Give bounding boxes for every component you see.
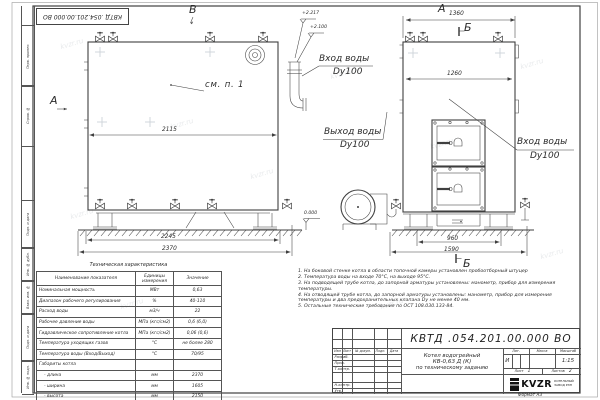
product-title-line3: по техническому заданию	[416, 365, 488, 371]
inlet-label-front: Вход воды	[517, 138, 567, 148]
rev-col-list: Лист	[342, 348, 352, 354]
spec-cell: 2150	[174, 391, 222, 400]
outlet-label: Выход воды	[324, 128, 381, 138]
spec-cell: %	[136, 296, 174, 307]
spec-cell: Рабочее давление воды	[37, 317, 136, 328]
technical-notes: 1. На боковой стенке котла в области топ…	[298, 269, 576, 310]
valve-icon	[96, 199, 105, 209]
dim-960: 960	[447, 236, 458, 242]
sheets-label: Листов	[551, 369, 564, 373]
elevation-zero: 0.000	[304, 211, 317, 216]
title-block: КВТД .054.201.00.000 ВО Изм Лист № докум…	[332, 328, 580, 393]
outlet-dn: Dy100	[340, 141, 369, 151]
logo-text: KVZR	[521, 379, 552, 390]
spec-cell: - высота	[37, 391, 136, 400]
valve-icon	[392, 199, 401, 209]
valve-icon	[406, 32, 415, 42]
dim-2370: 2370	[162, 246, 177, 252]
view-letter-b: В	[189, 4, 197, 16]
strip-label: Инв. № подл.	[22, 360, 34, 395]
spec-header: Наименование показателя	[37, 272, 136, 286]
frame-strip: Перв. примен. Справ. № Подп. и дата Инв.…	[21, 6, 35, 393]
view-letter-a-side: А	[50, 95, 58, 107]
spec-table: Техническая характеристика Наименование …	[36, 262, 221, 400]
sign-nkontr: Н.контр.	[335, 383, 351, 387]
valve-icon	[494, 32, 503, 42]
spec-cell: МПа (кгс/см2)	[136, 317, 174, 328]
sheet-label: Лист	[515, 369, 524, 373]
valve-icon	[259, 32, 268, 42]
spec-cell: °С	[136, 349, 174, 360]
elevation-2217: +2.217	[302, 11, 319, 16]
spec-cell: Гидравлическое сопротивление котла	[37, 328, 136, 339]
scale-value: 1:15	[555, 354, 581, 368]
title-block-doc-number: КВТД .054.201.00.000 ВО	[401, 329, 581, 348]
spec-cell: Температура уходящих газов	[37, 338, 136, 349]
dim-2115: 2115	[162, 127, 177, 133]
upper-furnace-door	[432, 120, 485, 166]
spec-cell: 2370	[174, 370, 222, 381]
spec-cell: 40-110	[174, 296, 222, 307]
dim-1360: 1360	[449, 11, 464, 17]
valve-icon	[109, 32, 118, 42]
spec-cell: МВт	[136, 286, 174, 297]
strip-label: Справ. №	[22, 85, 34, 147]
spec-cell: не более 280	[174, 338, 222, 349]
valve-icon	[128, 199, 137, 209]
see-item-note: см. п. 1	[205, 81, 244, 90]
corner-stamp: КВТД .054.201.00.000 ВО	[36, 8, 129, 25]
spec-cell: м3/ч	[136, 307, 174, 318]
spec-cell: 1605	[174, 381, 222, 392]
spec-cell: Номинальная мощность	[37, 286, 136, 297]
sign-tkontr: Т.контр.	[335, 367, 351, 371]
valve-icon	[208, 199, 217, 209]
sign-razrab: Разраб.	[335, 355, 349, 359]
note-item: 3. На подводящей трубе котла, до запорно…	[298, 281, 576, 292]
rev-col-dokum: № докум.	[352, 348, 374, 354]
rev-col-izm: Изм	[333, 348, 342, 354]
product-title: Котел водогрейный КВ-0,63 Д (К) по техни…	[401, 349, 503, 374]
spec-cell: °С	[136, 338, 174, 349]
spec-cell: мм	[136, 381, 174, 392]
format-label: Формат А3	[470, 393, 590, 398]
dim-1590: 1590	[444, 247, 459, 253]
spec-cell: мм	[136, 391, 174, 400]
spec-cell: - ширина	[37, 381, 136, 392]
spec-cell	[174, 360, 222, 371]
inlet-label-side: Вход воды	[319, 55, 369, 65]
rev-col-podp: Подп.	[374, 348, 387, 354]
lit-value: И	[503, 354, 512, 368]
spec-cell: 0,06 (0,6)	[174, 328, 222, 339]
spec-cell: 22	[174, 307, 222, 318]
mass-label: Масса	[529, 348, 555, 354]
note-item: 1. На боковой стенке котла в области топ…	[298, 269, 576, 274]
spec-cell	[136, 360, 174, 371]
smoke-exhauster-fan	[341, 190, 401, 230]
strip-label: Подп. и дата	[22, 313, 34, 362]
valve-icon	[206, 32, 215, 42]
spec-cell: мм	[136, 370, 174, 381]
company-name-line2: ЗАВОД РЭП	[554, 384, 574, 388]
spec-cell: - длина	[37, 370, 136, 381]
sheets-value: 2	[569, 369, 572, 374]
spec-header: Единицы измерения	[136, 272, 174, 286]
view-letter-a-front: А	[438, 3, 446, 15]
company-logo: KVZR КОТЕЛЬНЫЙ ЗАВОД РЭП	[503, 374, 581, 394]
inlet-dn-front: Dy100	[530, 152, 559, 162]
valve-icon	[171, 199, 180, 209]
valve-icon	[283, 199, 292, 209]
sign-prov: Пров.	[335, 361, 345, 365]
rev-col-data: Дата	[387, 348, 401, 354]
lower-furnace-door	[432, 167, 485, 211]
registration-crosses	[95, 47, 505, 127]
note-item: 5. Остальные технические требования по О…	[298, 304, 576, 309]
strip-label: Взам. инв. №	[22, 280, 34, 315]
note-item: 2. Температура воды на входе 70°С, на вы…	[298, 275, 576, 280]
strip-label: Подп. и дата	[22, 200, 34, 249]
logo-mark-icon	[510, 378, 519, 391]
valve-icon	[96, 32, 105, 42]
sheet-value: 1	[528, 369, 531, 374]
spec-cell: Диапазон рабочего регулирования	[37, 296, 136, 307]
spec-cell: Расход воды	[37, 307, 136, 318]
note-item: 4. На отводящей трубе котла, до запорной…	[298, 293, 576, 304]
sign-utv: Утв.	[335, 389, 343, 393]
valve-icon	[419, 32, 428, 42]
spec-cell: МПа (кгс/см2)	[136, 328, 174, 339]
spec-cell: Габариты котла	[37, 360, 136, 371]
spec-cell: Температура воды (Вход/Выход)	[37, 349, 136, 360]
strip-label: Инв. № дубл.	[22, 247, 34, 282]
spec-cell: 0,63	[174, 286, 222, 297]
dim-1260: 1260	[447, 71, 462, 77]
spec-cell: 70/95	[174, 349, 222, 360]
drawing-sheet: kvzr.ru kvzr.ru kvzr.ru kvzr.ru kvzr.ru …	[0, 0, 600, 400]
spec-header: Значение	[174, 272, 222, 286]
strip-label: Перв. примен.	[22, 25, 34, 87]
spec-cell: 0,6 (6,0)	[174, 317, 222, 328]
inlet-dn-side: Dy100	[333, 68, 362, 78]
valve-icon	[521, 198, 530, 208]
section-letter-b-top: Б	[464, 22, 472, 34]
elevation-2100: +2.100	[310, 25, 327, 30]
dim-2245: 2245	[161, 234, 176, 240]
spec-table-title: Техническая характеристика	[36, 262, 221, 271]
